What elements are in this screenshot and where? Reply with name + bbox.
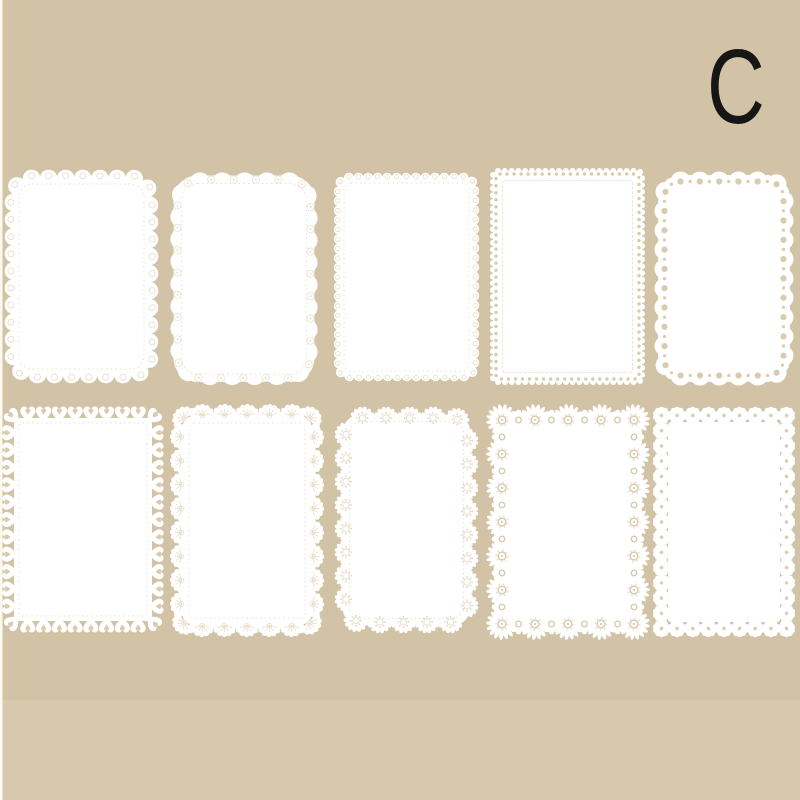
svg-text:C: C <box>707 27 765 146</box>
